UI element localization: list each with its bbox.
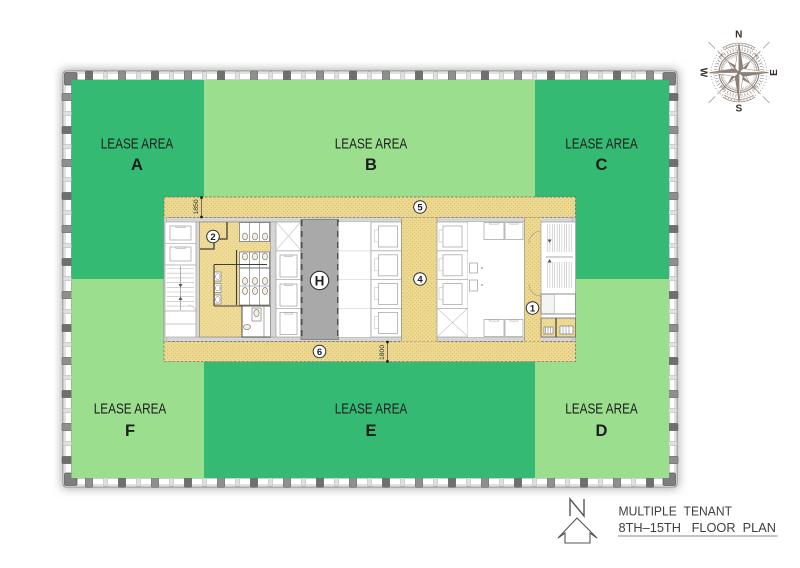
svg-text:LEASE AREA: LEASE AREA: [565, 136, 638, 153]
svg-text:E: E: [769, 69, 780, 76]
svg-text:LEASE AREA: LEASE AREA: [335, 136, 408, 153]
svg-text:LEASE AREA: LEASE AREA: [94, 401, 167, 418]
svg-text:MULTIPLE TENANT: MULTIPLE TENANT: [619, 505, 733, 519]
svg-text:N: N: [735, 30, 742, 41]
svg-text:2: 2: [210, 232, 215, 243]
svg-text:C: C: [596, 156, 608, 174]
svg-text:1800: 1800: [379, 345, 386, 360]
svg-text:LEASE AREA: LEASE AREA: [565, 401, 638, 418]
svg-text:LEASE AREA: LEASE AREA: [335, 401, 408, 418]
svg-text:8TH–15TH FLOOR PLAN: 8TH–15TH FLOOR PLAN: [619, 521, 777, 535]
svg-text:6: 6: [317, 347, 322, 358]
svg-text:4: 4: [417, 275, 423, 286]
svg-text:F: F: [125, 422, 135, 440]
svg-text:W: W: [698, 68, 709, 78]
svg-text:E: E: [365, 422, 376, 440]
svg-text:B: B: [365, 156, 377, 174]
svg-text:A: A: [131, 156, 143, 174]
svg-text:H: H: [315, 274, 325, 289]
svg-text:1: 1: [530, 304, 536, 315]
svg-text:D: D: [596, 422, 608, 440]
svg-text:S: S: [735, 104, 742, 115]
svg-text:1850: 1850: [193, 199, 200, 214]
svg-text:LEASE AREA: LEASE AREA: [101, 136, 174, 153]
svg-text:5: 5: [417, 203, 423, 214]
